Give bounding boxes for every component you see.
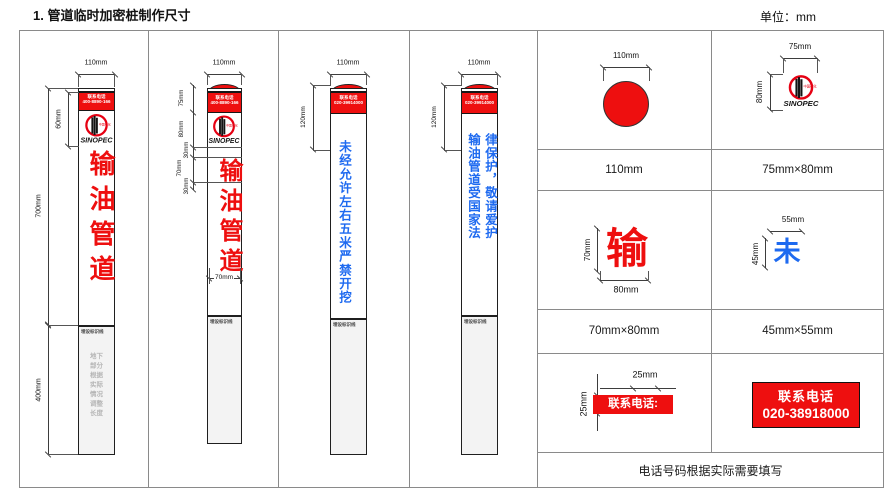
extension-line <box>78 74 79 87</box>
post3-ground-label: 埋设标识线 <box>333 321 356 328</box>
column-divider <box>537 30 538 488</box>
caption-char-red: 70mm×80mm <box>537 309 711 353</box>
unit-label: 单位：mm <box>760 8 816 25</box>
logo-wordmark: SINOPEC <box>784 99 819 108</box>
page-title: 1. 管道临时加密桩制作尺寸 <box>33 5 190 24</box>
post2-phone-band: 联系电话 400-8890-166 <box>208 91 241 113</box>
band-line2: 020-39914000 <box>462 100 497 105</box>
dim-label: 75mm <box>179 90 185 107</box>
dim-label: 110mm <box>612 52 640 60</box>
extension-line <box>207 74 208 85</box>
dim-label: 80mm <box>756 81 764 103</box>
sinopec-logo-icon: 中国石化 SINOPEC <box>783 73 819 110</box>
dim-line <box>765 238 766 268</box>
extension-line <box>240 268 241 284</box>
post2-ground-label: 埋设标识线 <box>210 318 233 325</box>
extension-line <box>817 58 818 73</box>
extension-line <box>444 85 462 86</box>
dim-line <box>48 325 49 455</box>
dim-line <box>770 74 771 110</box>
dim-label: 110mm <box>467 60 492 67</box>
post1-ground-label: 埋设标识线 <box>81 328 104 335</box>
phone-band-title: 联系电话 <box>778 389 834 405</box>
dim-line <box>48 88 49 325</box>
dim-line <box>597 228 598 272</box>
post3-underground <box>330 318 367 455</box>
dim-line <box>600 388 676 389</box>
extension-line <box>68 146 79 147</box>
dim-line <box>193 85 194 190</box>
dim-label: 70mm <box>214 275 234 282</box>
dim-label: 55mm <box>781 216 805 224</box>
post1-underground-note: 地下部分根据实际情况调整长度 <box>89 351 104 418</box>
dim-line <box>783 58 817 59</box>
extension-line <box>330 74 331 85</box>
post2-underground <box>207 315 242 444</box>
caption-circle: 110mm <box>537 149 711 190</box>
drawing-sheet: 1. 管道临时加密桩制作尺寸 单位：mm 110mm 联系电话 400-8890… <box>0 0 884 489</box>
panel-divider <box>711 30 712 453</box>
dim-line <box>600 280 648 281</box>
phone-band-large: 联系电话 020-38918000 <box>752 382 860 428</box>
band-line2: 400-8890-166 <box>208 100 241 105</box>
dim-label: 110mm <box>212 60 237 67</box>
extension-line <box>313 150 330 151</box>
dim-line <box>603 67 649 68</box>
logo-bars <box>797 77 802 98</box>
sinopec-logo-icon: 中国石化 SINOPEC <box>80 112 113 146</box>
band-line2: 400-8890-166 <box>79 99 114 104</box>
post4-ground-label: 埋设标识线 <box>464 318 487 325</box>
dim-label: 30mm <box>184 178 190 195</box>
extension-line <box>48 454 78 455</box>
extension-line <box>68 92 79 93</box>
dim-label: 700mm <box>36 194 43 217</box>
sinopec-logo-icon: 中国石化 SINOPEC <box>208 114 240 146</box>
extension-line <box>209 268 210 284</box>
post4-underground <box>461 315 498 455</box>
phone-band-number: 020-38918000 <box>762 405 849 422</box>
logo-wordmark: SINOPEC <box>208 138 240 145</box>
extension-line <box>366 74 367 85</box>
logo-cn-text: 中国石化 <box>803 83 817 88</box>
logo-cn-text: 中国石化 <box>99 121 111 126</box>
extension-line <box>193 157 242 158</box>
dim-line-width <box>78 74 115 75</box>
dim-label: 120mm <box>301 106 308 128</box>
dim-label: 110mm <box>336 60 361 67</box>
caption-logo: 75mm×80mm <box>711 149 884 190</box>
post2-marker-text: 输油管道 <box>211 158 238 278</box>
logo-bars <box>220 117 224 136</box>
extension-line <box>648 271 649 280</box>
extension-line <box>497 74 498 85</box>
footer-note: 电话号码根据实际需要填写 <box>537 452 884 488</box>
extension-line <box>241 74 242 85</box>
extension-line <box>48 325 78 326</box>
extension-line <box>193 182 242 183</box>
extension-line <box>444 150 461 151</box>
dim-label: 400mm <box>36 378 43 401</box>
extension-line <box>603 67 604 81</box>
dim-label: 25mm <box>580 391 589 416</box>
dim-label: 80mm <box>612 286 639 295</box>
dim-label: 30mm <box>184 142 190 159</box>
column-divider <box>278 30 279 488</box>
row-divider <box>537 190 884 191</box>
logo-wordmark: SINOPEC <box>81 137 114 145</box>
caption-char-blue: 45mm×55mm <box>711 309 884 353</box>
row-divider <box>537 353 884 354</box>
extension-line <box>48 88 78 89</box>
post3-phone-band: 联系电话 020-39914000 <box>331 91 366 114</box>
column-divider <box>148 30 149 488</box>
post4-phone-band: 联系电话 020-39914000 <box>462 91 497 114</box>
logo-cn-text: 中国石化 <box>226 122 238 127</box>
post3-warning-text: 未经允许左右五米严禁开挖 <box>335 140 362 304</box>
post1-marker-text: 输油管道 <box>83 150 110 290</box>
extension-line <box>770 74 783 75</box>
extension-line <box>193 147 242 148</box>
dim-line-width <box>330 74 367 75</box>
dim-line-width <box>461 74 498 75</box>
extension-line <box>770 110 783 111</box>
dim-label: 80mm <box>179 121 185 138</box>
dim-line <box>444 85 445 150</box>
post4-law-text-left: 输油管道受国家法 <box>464 133 479 239</box>
post1-phone-band: 联系电话 400-8890-166 <box>79 91 114 111</box>
sample-char-blue: 未 <box>772 237 802 267</box>
dim-line <box>68 92 69 147</box>
dim-label: 75mm <box>788 43 812 51</box>
extension-line <box>114 74 115 87</box>
red-circle-top-view <box>603 81 649 127</box>
phone-band-small: 联系电话: <box>593 395 673 414</box>
extension-line <box>600 271 601 280</box>
dim-line <box>770 231 802 232</box>
dim-line-width <box>207 74 242 75</box>
extension-line <box>313 85 331 86</box>
sample-char-red: 输 <box>604 226 650 272</box>
logo-bars <box>92 116 97 135</box>
dim-label: 110mm <box>84 60 109 67</box>
post4-law-text-right: 律保护，敬请爱护 <box>481 133 496 239</box>
dim-label: 45mm <box>752 243 760 265</box>
extension-line <box>461 74 462 85</box>
dim-label: 70mm <box>177 160 183 177</box>
band-line2: 020-39914000 <box>331 100 366 105</box>
dim-label: 25mm <box>631 371 658 380</box>
dim-line <box>313 85 314 150</box>
dim-label: 70mm <box>584 239 592 261</box>
column-divider <box>409 30 410 488</box>
dim-label: 120mm <box>432 106 439 128</box>
dim-label: 60mm <box>56 109 63 128</box>
extension-line <box>649 67 650 81</box>
extension-line <box>783 58 784 73</box>
